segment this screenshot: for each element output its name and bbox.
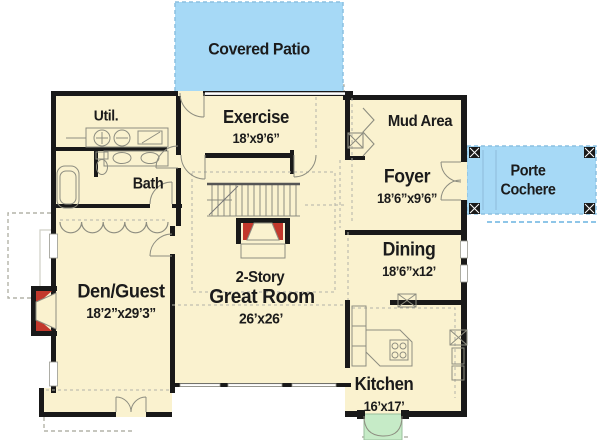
floor-plan-drawing: [0, 0, 600, 440]
room-dims-great-room: 26’x26’: [239, 312, 283, 327]
room-label-porte-cochere-line1: Porte: [511, 163, 546, 179]
floor-plan: Covered Patio Util. Exercise 18’x9’6” Mu…: [0, 0, 600, 440]
room-dims-exercise: 18’x9’6”: [233, 131, 280, 145]
porte-cochere-area: [467, 146, 596, 214]
room-label-porte-cochere-line2: Cochere: [500, 182, 555, 198]
great-room-fireplace: [236, 218, 290, 258]
room-label-dining: Dining: [383, 241, 436, 260]
room-label-den-guest: Den/Guest: [77, 282, 164, 302]
room-dims-kitchen: 16’x17’: [364, 399, 405, 413]
room-label-util: Util.: [94, 109, 118, 124]
room-dims-den-guest: 18’2”x29’3”: [86, 307, 155, 322]
room-label-covered-patio: Covered Patio: [208, 41, 309, 58]
room-dims-dining: 18’6”x12’: [382, 264, 436, 278]
room-label-kitchen: Kitchen: [355, 375, 414, 393]
room-label-great-room-line2: Great Room: [209, 287, 314, 308]
room-label-foyer: Foyer: [384, 168, 430, 187]
room-dims-foyer: 18’6”x9’6”: [377, 191, 437, 205]
room-label-mud-area: Mud Area: [388, 114, 452, 130]
room-label-exercise: Exercise: [223, 108, 289, 126]
room-label-bath: Bath: [133, 176, 164, 192]
room-label-great-room-line1: 2-Story: [236, 270, 285, 286]
